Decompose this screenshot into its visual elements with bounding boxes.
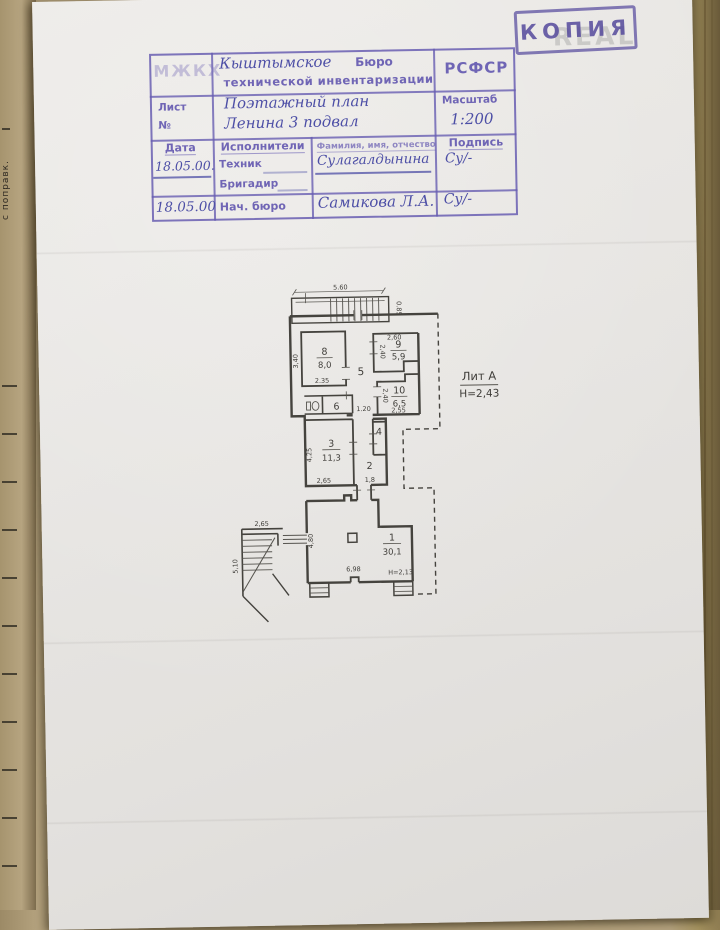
binding-tick [2,385,17,387]
dim-stair-h: 5,10 [231,559,239,574]
org-abbr: МЖКХ [153,61,222,81]
fold-line [711,0,713,910]
binding-tick [2,481,17,483]
room8-number: 8 [321,347,327,358]
brigadir-role: Бригадир [219,178,278,191]
room1-area: 30,1 [383,547,402,557]
dim-top-width: 5.60 [333,283,348,291]
binding-tick [2,673,17,675]
dashed-boundary [401,314,443,595]
floor-plan: 5.60 0.85 8 8,0 3,40 2.35 5 9 [220,279,528,624]
technician-name: Сулагалдынина [317,151,430,169]
scale-label: Масштаб [442,94,498,107]
binding-tick [2,817,17,819]
scale-value: 1:200 [450,110,494,129]
staircase [242,528,290,622]
chief-name: Самикова Л.А. [318,192,435,212]
sheet-no-label: № [158,120,171,132]
col-executors: Исполнители [221,139,305,155]
liter-label: Лит А [462,369,497,384]
dim-r8-h: 3,40 [292,354,300,369]
dim-r9-h: 2,40 [378,344,386,359]
sheet-label: Лист [158,101,187,114]
binding-tick [2,433,17,435]
col-date: Дата [165,141,196,156]
liter-height: Н=2,43 [459,388,499,401]
binding-tick [2,625,17,627]
room10-number: 10 [393,385,405,396]
binding-tick [2,529,17,531]
dim-r1-w: 6,98 [346,565,361,573]
dim-stair-w: 2,65 [254,520,269,528]
room-1-walls [282,494,413,597]
doc-title-line2: Ленина 3 подвал [224,112,359,132]
room4-number: 4 [376,427,382,438]
dim-r1-h: 4,80 [307,534,315,549]
dim-r8-w: 2.35 [315,377,330,385]
document-page: REAL КОПИЯ МЖКХ Кыштымское Бюро техничес… [32,0,709,930]
room3-number: 3 [328,439,334,450]
dim-r3-w: 2,65 [317,477,332,485]
room5-number: 5 [357,366,364,378]
org-city: Кыштымское [219,53,331,73]
copy-stamp: КОПИЯ [514,5,638,55]
room1-number: 1 [389,532,395,543]
binding-tick [2,128,10,130]
binding-tick [2,865,17,867]
binding-tick [2,721,17,723]
binding-tick [2,577,17,579]
entry-steps [291,288,389,324]
paper-crease [44,630,704,645]
paper-crease [37,240,697,255]
org-republic: РСФСР [441,58,511,77]
technician-role: Техник [219,158,262,171]
toilet-bowl-icon [312,401,319,410]
dim-r9-w: 2,60 [387,333,402,341]
dim-r1-ceiling: Н=2,13 [388,568,413,576]
dim-r10-w: 2,55 [391,406,406,414]
bti-stamp-table: МЖКХ Кыштымское Бюро технической инвента… [149,47,518,222]
chief-role: Нач. бюро [220,199,286,213]
connector-walls [353,485,375,500]
binding-side-text: с поправк. [1,160,11,220]
paper-crease [47,810,707,825]
room6-number: 6 [333,401,339,412]
dim-r10-h: 2,40 [381,388,389,403]
org-bureau: Бюро [355,54,393,69]
chief-signature: Су/- [444,191,473,208]
dim-r3-h: 4,25 [305,448,313,463]
dim-corridor: 1.20 [356,405,371,413]
room8-area: 8,0 [318,361,332,371]
col-signature: Подпись [449,135,504,150]
chief-date: 18.05.00 [156,199,216,216]
technician-date: 18.05.00. [155,158,215,174]
room2-number: 2 [366,461,372,472]
room9-area: 5,9 [392,352,406,362]
technician-signature: Су/- [445,150,473,166]
book-binding-edge: с поправк. [0,0,36,910]
toilet-tank-icon [306,402,310,410]
doc-title-line1: Поэтажный план [224,92,370,113]
room3-area: 11,3 [322,453,341,463]
room-6-walls [304,391,352,414]
binding-tick [2,769,17,771]
dim-r2-w: 1,8 [365,476,375,484]
